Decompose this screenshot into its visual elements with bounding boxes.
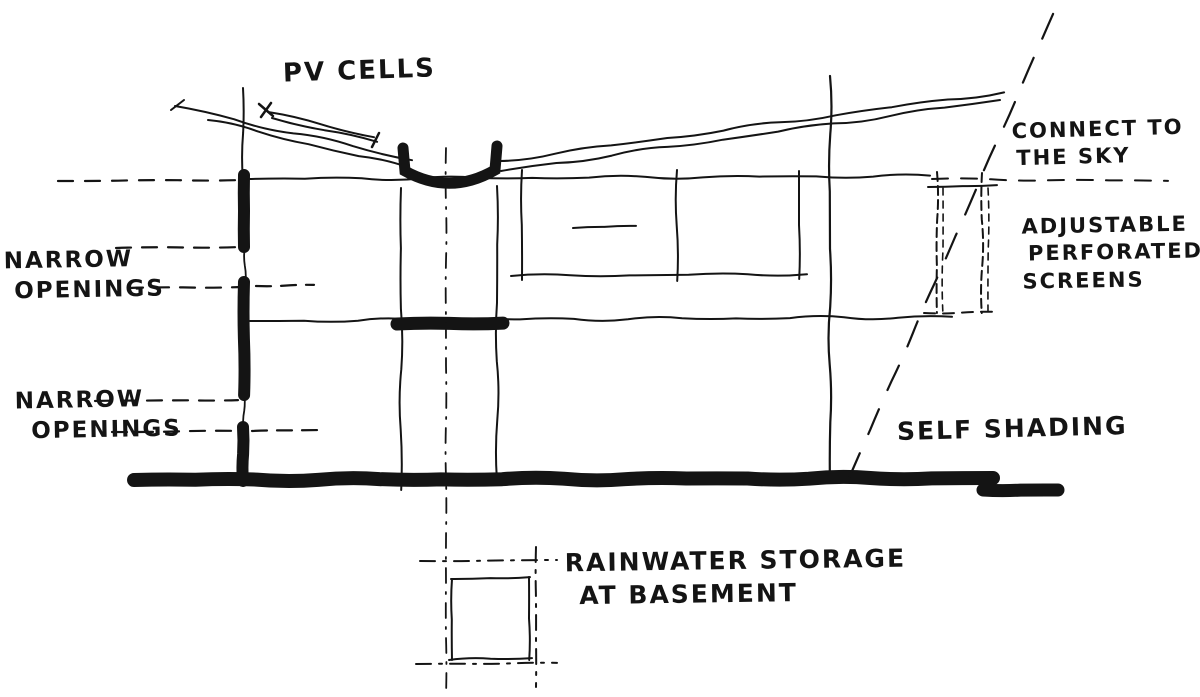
label-rainwater-line2: AT BASEMENT	[579, 575, 907, 612]
label-rainwater-storage: RAINWATER STORAGE AT BASEMENT	[565, 543, 907, 613]
storage-tank	[449, 577, 532, 660]
roof	[171, 92, 1004, 171]
label-narrow-openings-upper: NARROW OPENINGS	[3, 245, 165, 308]
label-narrow-lower-line1: NARROW	[14, 385, 181, 418]
label-narrow-lower-line2: OPENINGS	[31, 414, 182, 447]
ground-line	[134, 477, 1058, 491]
label-connect-line1: CONNECT TO	[1011, 114, 1184, 146]
label-adjustable-perforated-screens: ADJUSTABLE PERFORATED SCREENS	[1021, 210, 1200, 295]
label-connect-to-the-sky: CONNECT TO THE SKY	[1011, 114, 1184, 173]
label-narrow-upper-line1: NARROW	[3, 245, 164, 278]
right-column	[829, 76, 832, 480]
left-wall	[242, 88, 246, 481]
tank-axis-lines	[416, 547, 557, 687]
core-shaft	[397, 186, 503, 490]
label-narrow-openings-lower: NARROW OPENINGS	[14, 385, 182, 448]
label-adjustable-line3: SCREENS	[1022, 265, 1200, 295]
label-pv-cells: PV CELLS	[282, 52, 436, 91]
sketch-canvas: PV CELLS CONNECT TO THE SKY ADJUSTABLE P…	[0, 0, 1200, 697]
label-rainwater-line1: RAINWATER STORAGE	[565, 543, 907, 580]
pv-panel	[259, 103, 379, 147]
label-adjustable-line2: PERFORATED	[1028, 238, 1200, 268]
label-pv-cells-text: PV CELLS	[282, 52, 436, 91]
floor-line	[250, 316, 952, 322]
label-connect-line2: THE SKY	[1016, 141, 1185, 173]
interior-partitions	[511, 170, 807, 281]
label-narrow-upper-line2: OPENINGS	[14, 274, 165, 307]
center-axis	[446, 148, 447, 692]
roof-level-line	[248, 174, 1168, 180]
label-self-shading-text: SELF SHADING	[897, 410, 1128, 449]
perforated-screen	[924, 172, 999, 313]
label-adjustable-line1: ADJUSTABLE	[1021, 210, 1200, 240]
label-self-shading: SELF SHADING	[897, 410, 1128, 449]
